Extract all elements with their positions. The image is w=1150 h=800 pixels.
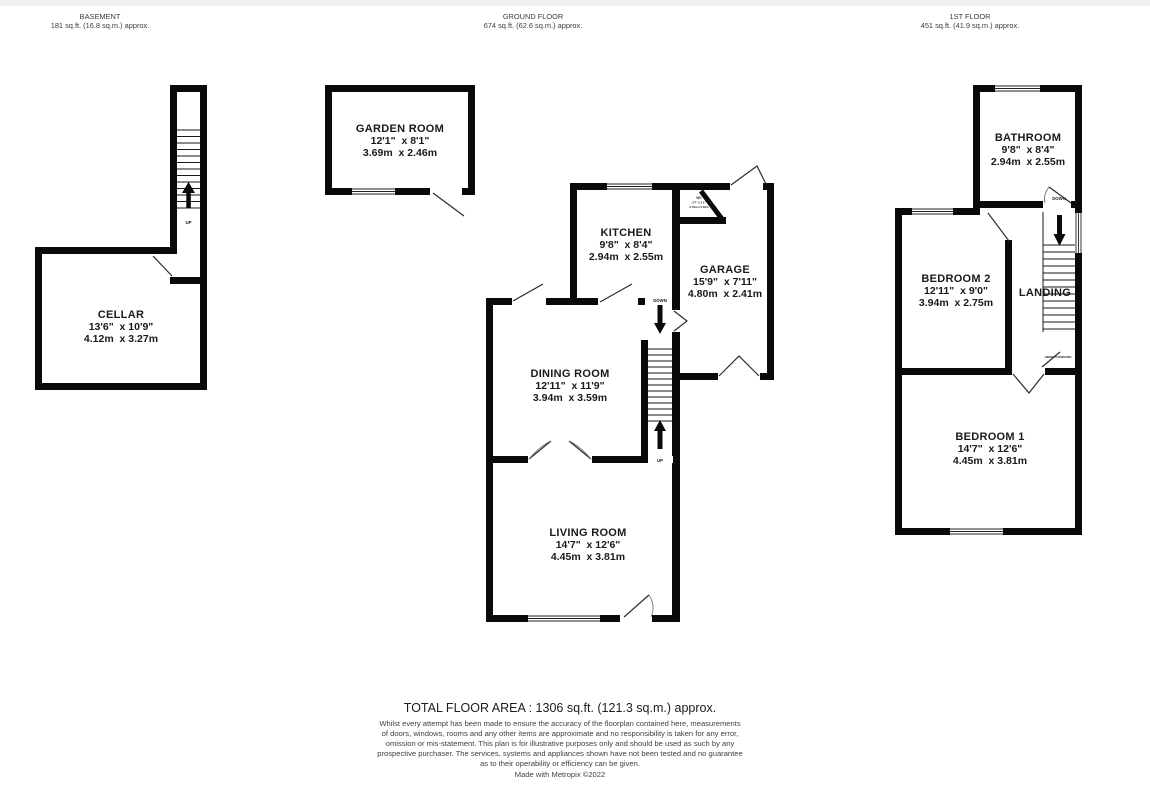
- front-door: [620, 595, 653, 622]
- first-down-label: DOWN: [1052, 196, 1066, 201]
- footer: TOTAL FLOOR AREA : 1306 sq.ft. (121.3 sq…: [377, 701, 742, 779]
- room-dims-bathroom-metric: 2.94m x 2.55m: [991, 156, 1065, 168]
- basement-header-area: 181 sq.ft. (16.8 sq.m.) approx.: [51, 21, 150, 30]
- room-dims-cellar-imperial: 13'6" x 10'9": [89, 321, 154, 333]
- room-dims-bedroom2-metric: 3.94m x 2.75m: [919, 297, 993, 309]
- floorplan-image: BASEMENT 181 sq.ft. (16.8 sq.m.) approx.…: [0, 0, 1150, 800]
- ground-header-title: GROUND FLOOR: [503, 12, 563, 21]
- first-floor-stairs: DOWN: [1043, 196, 1075, 332]
- bedroom1-window: [950, 528, 1003, 535]
- room-label-airing-cupboard: AIRING CUPBOARD: [1045, 355, 1072, 359]
- room-dims-kitchen-imperial: 9'8" x 8'4": [600, 239, 653, 251]
- bathroom-window: [995, 85, 1040, 92]
- room-label-living: LIVING ROOM: [549, 527, 626, 539]
- room-label-bathroom: BATHROOM: [995, 132, 1061, 144]
- garage-rear-double-door: [718, 356, 760, 380]
- basement-plan: UP CELLAR 13'6" x 10'9" 4.12m x 3.27m: [35, 85, 207, 390]
- ground-floor-plan: DOWN UP WC 2'7" x 2'1" 0.79m x 0.63m KIT…: [486, 166, 774, 622]
- room-label-wc: WC: [696, 196, 702, 200]
- first-header-area: 451 sq.ft. (41.9 sq.m.) approx.: [921, 21, 1020, 30]
- room-dims-garden-imperial: 12'1" x 8'1": [371, 135, 430, 147]
- room-dims-bedroom1-metric: 4.45m x 3.81m: [953, 455, 1027, 467]
- dining-room-label: DINING ROOM 12'11" x 11'9" 3.94m x 3.59m: [530, 368, 609, 404]
- disclaimer-line-4: prospective purchaser. The services, sys…: [377, 749, 742, 758]
- basement-up-label: UP: [186, 220, 192, 225]
- room-dims-garden-metric: 3.69m x 2.46m: [363, 147, 437, 159]
- room-dims-dining-metric: 3.94m x 3.59m: [533, 392, 607, 404]
- top-strip: [0, 0, 1150, 6]
- living-room-label: LIVING ROOM 14'7" x 12'6" 4.45m x 3.81m: [549, 527, 626, 563]
- room-dims-wc-metric: 0.79m x 0.63m: [690, 205, 709, 209]
- room-dims-dining-imperial: 12'11" x 11'9": [535, 380, 604, 392]
- landing-window: [1075, 213, 1082, 253]
- ground-header-area: 674 sq.ft. (62.6 sq.m.) approx.: [484, 21, 583, 30]
- basement-header-title: BASEMENT: [80, 12, 121, 21]
- room-dims-garage-imperial: 15'9" x 7'11": [693, 276, 757, 288]
- cellar-door-swing: [153, 256, 172, 276]
- living-room-window: [528, 615, 600, 622]
- room-dims-bathroom-imperial: 9'8" x 8'4": [1002, 144, 1055, 156]
- ground-floor-stairs: DOWN UP: [648, 298, 673, 463]
- room-dims-bedroom1-imperial: 14'7" x 12'6": [958, 443, 1023, 455]
- credit-line: Made with Metropix ©2022: [515, 770, 605, 779]
- room-dims-living-imperial: 14'7" x 12'6": [556, 539, 621, 551]
- room-label-garage: GARAGE: [700, 264, 750, 276]
- room-label-cellar: CELLAR: [98, 309, 144, 321]
- garage-top-door: [730, 166, 766, 190]
- down-arrow: [1054, 215, 1066, 246]
- garden-room-window: [352, 188, 395, 195]
- bedroom2-door-swing: [988, 213, 1009, 241]
- bedroom1-label: BEDROOM 1 14'7" x 12'6" 4.45m x 3.81m: [953, 431, 1027, 467]
- garden-room-plan: GARDEN ROOM 12'1" x 8'1" 3.69m x 2.46m: [325, 85, 475, 216]
- kitchen-label: KITCHEN 9'8" x 8'4" 2.94m x 2.55m: [589, 227, 663, 263]
- cellar-room-label: CELLAR 13'6" x 10'9" 4.12m x 3.27m: [84, 309, 158, 345]
- room-dims-kitchen-metric: 2.94m x 2.55m: [589, 251, 663, 263]
- disclaimer-line-3: omission or mis-statement. This plan is …: [386, 739, 735, 748]
- dining-living-double-door: [528, 441, 592, 463]
- down-arrow: [654, 305, 666, 334]
- basement-stairs: UP: [177, 130, 200, 225]
- room-dims-bedroom2-imperial: 12'11" x 9'0": [924, 285, 988, 297]
- room-label-bedroom1: BEDROOM 1: [955, 431, 1024, 443]
- room-label-landing: LANDING: [1019, 287, 1071, 299]
- garage-label: GARAGE 15'9" x 7'11" 4.80m x 2.41m: [688, 264, 762, 300]
- room-label-kitchen: KITCHEN: [601, 227, 652, 239]
- room-label-bedroom2: BEDROOM 2: [921, 273, 990, 285]
- room-dims-wc-imperial: 2'7" x 2'1": [692, 201, 706, 205]
- kitchen-dining-door-swing: [600, 284, 632, 302]
- ground-up-label: UP: [657, 458, 663, 463]
- room-dims-garage-metric: 4.80m x 2.41m: [688, 288, 762, 300]
- dining-side-door: [512, 284, 546, 305]
- floorplan-page: BASEMENT 181 sq.ft. (16.8 sq.m.) approx.…: [0, 0, 1150, 800]
- first-floor-plan: DOWN BATHROOM 9'8" x 8'4" 2.94m x 2.55m …: [895, 85, 1082, 535]
- garden-room-label: GARDEN ROOM 12'1" x 8'1" 3.69m x 2.46m: [356, 123, 444, 159]
- kitchen-window: [607, 183, 652, 190]
- disclaimer-line-5: as to their operability or efficiency ca…: [480, 759, 640, 768]
- first-header-title: 1ST FLOOR: [950, 12, 991, 21]
- room-label-dining: DINING ROOM: [530, 368, 609, 380]
- up-arrow: [654, 420, 666, 449]
- disclaimer-line-1: Whilst every attempt has been made to en…: [379, 719, 741, 728]
- room-dims-cellar-metric: 4.12m x 3.27m: [84, 333, 158, 345]
- bedroom2-label: BEDROOM 2 12'11" x 9'0" 3.94m x 2.75m: [919, 273, 993, 309]
- ground-down-label: DOWN: [653, 298, 667, 303]
- floor-headers: BASEMENT 181 sq.ft. (16.8 sq.m.) approx.…: [51, 12, 1020, 30]
- bedroom2-window: [912, 208, 953, 215]
- disclaimer-line-2: of doors, windows, rooms and any other i…: [382, 729, 739, 738]
- room-label-garden-room: GARDEN ROOM: [356, 123, 444, 135]
- bedroom1-door-swing: [1013, 374, 1044, 393]
- room-dims-living-metric: 4.45m x 3.81m: [551, 551, 625, 563]
- total-floor-area: TOTAL FLOOR AREA : 1306 sq.ft. (121.3 sq…: [404, 701, 716, 715]
- garden-room-door: [430, 188, 464, 216]
- bathroom-label: BATHROOM 9'8" x 8'4" 2.94m x 2.55m: [991, 132, 1065, 168]
- garage-side-door: [672, 310, 687, 332]
